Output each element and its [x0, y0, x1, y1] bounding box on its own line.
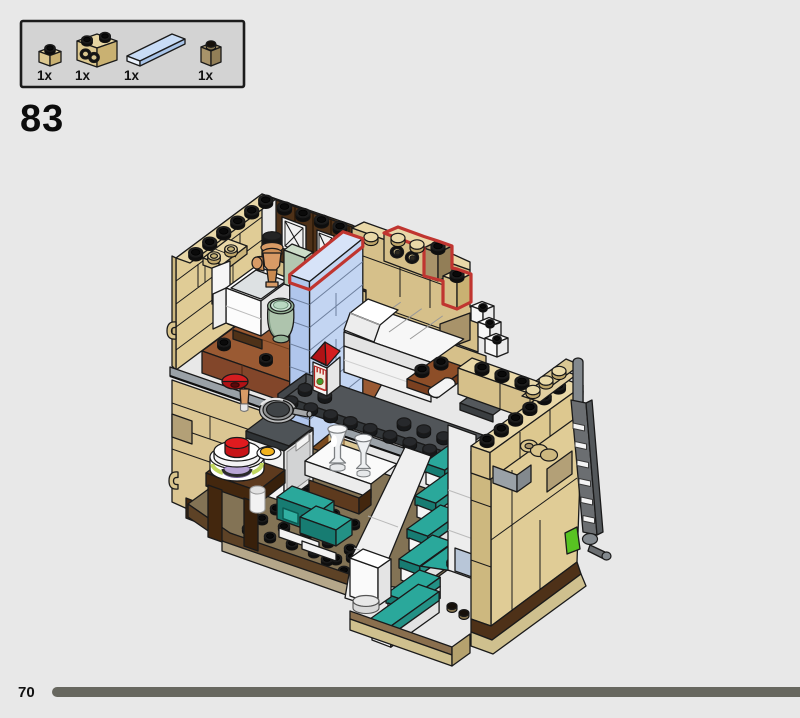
svg-text:1x: 1x: [75, 68, 91, 83]
svg-text:70: 70: [18, 684, 35, 701]
svg-text:83: 83: [20, 98, 64, 140]
svg-text:1x: 1x: [198, 68, 214, 83]
svg-text:1x: 1x: [37, 68, 53, 83]
svg-text:1x: 1x: [124, 68, 140, 83]
